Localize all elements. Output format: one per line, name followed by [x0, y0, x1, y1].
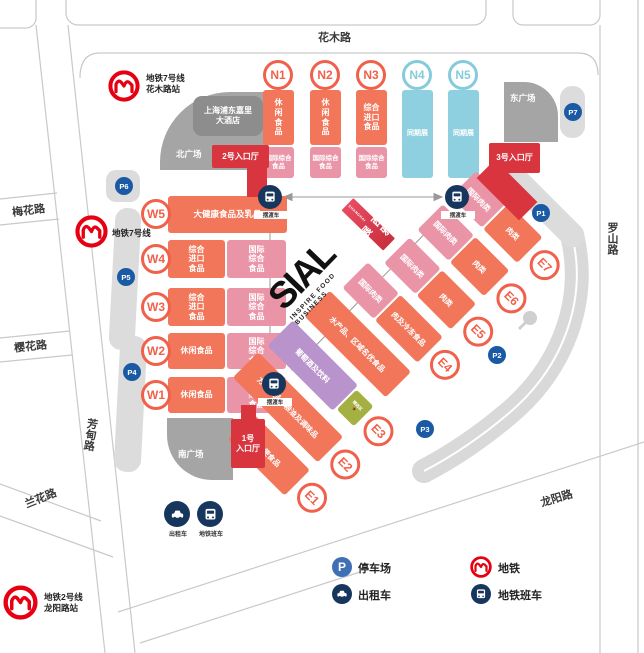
- taxi-label: 出租车: [162, 529, 194, 538]
- city-block: [513, 0, 600, 25]
- road-edge-meihua: [0, 219, 59, 225]
- road-label-yinghua: 樱花路: [13, 336, 47, 355]
- metro-logo-icon: [3, 585, 38, 620]
- entrance-hall-3-label: 3号入口厅: [496, 153, 532, 163]
- road-edge-yinghua: [0, 355, 72, 362]
- hall-circle-n1: N1: [263, 60, 293, 90]
- taxi-icon: [164, 501, 190, 527]
- entrance-hall-1: 1号 入口厅: [231, 419, 265, 468]
- metro-line7-label-line2: 花木路站: [146, 84, 185, 95]
- entrance-hall-2: 2号入口厅: [212, 145, 269, 168]
- hall-circle-w4: W4: [141, 244, 171, 274]
- metro-shuttle-icon: [197, 501, 223, 527]
- east-plaza-label: 东广场: [510, 92, 536, 104]
- hall-circle-n3: N3: [356, 60, 386, 90]
- legend-parking-icon: P: [332, 557, 352, 577]
- legend-metro-shuttle-label: 地铁班车: [498, 587, 542, 603]
- parking-marker-p3: P3: [416, 420, 434, 438]
- metro-logo-icon: [75, 215, 108, 248]
- entrance-hall-3: 3号入口厅: [489, 143, 540, 173]
- hall-circle-w3: W3: [141, 292, 171, 322]
- hall-circle-n5: N5: [448, 60, 478, 90]
- hotel-box: 上海浦东嘉里 大酒店: [193, 96, 263, 136]
- parking-marker-p7: P7: [564, 103, 582, 121]
- south-plaza-label: 南广场: [178, 448, 204, 460]
- parking-marker-p2: P2: [488, 346, 506, 364]
- entrance-hall-1-label-line2: 入口厅: [236, 444, 260, 454]
- hall-circle-n4: N4: [402, 60, 432, 90]
- hall-circle-n2: N2: [310, 60, 340, 90]
- legend-metro-shuttle-icon: [471, 584, 491, 604]
- road-edge-meihua: [0, 193, 57, 199]
- hotel-name-line2: 大酒店: [216, 116, 240, 126]
- legend-taxi-label: 出租车: [358, 587, 391, 603]
- hall-circle-w2: W2: [141, 336, 171, 366]
- hall-circle-w5: W5: [141, 199, 171, 229]
- city-block: [66, 0, 486, 25]
- shuttle-bus-icon: [445, 185, 469, 209]
- metro-logo-icon: [108, 70, 140, 102]
- legend-metro-label: 地铁: [498, 560, 520, 576]
- parking-marker-p6: P6: [115, 177, 133, 195]
- hall-n5-zone-label: 同期展: [453, 130, 474, 138]
- road-edge-longyang: [140, 572, 360, 643]
- metro-line2-label-line1: 地铁2号线: [44, 592, 83, 603]
- hall-n2-zone-label: 休闲食品: [321, 98, 331, 136]
- legend-taxi-icon: [332, 584, 352, 604]
- metro-line2-label-line2: 龙阳路站: [44, 603, 83, 614]
- entrance-hall-1-label-line1: 1号: [242, 434, 254, 444]
- hall-n1-zone: 休闲食品: [263, 90, 294, 145]
- metro-line7-label-line1: 地铁7号线: [146, 73, 185, 84]
- metro-shuttle-label: 地铁班车: [192, 529, 230, 538]
- shuttle-bus-label: 摆渡车: [254, 211, 288, 219]
- hall-n1-zone-label: 休闲食品: [274, 98, 284, 136]
- entrance-hall-2-label: 2号入口厅: [222, 152, 258, 162]
- north-plaza-label: 北广场: [176, 148, 202, 160]
- hall-e3-special-star: ★: [350, 406, 357, 413]
- shuttle-bus-icon: [262, 372, 286, 396]
- hall-n1-zone2-label: 国际综合食品: [265, 155, 292, 171]
- road-label-luoshan: 罗山路: [604, 222, 620, 255]
- metro-line2-longyang-station-label: 地铁2号线 龙阳路站: [44, 592, 83, 615]
- hall-circle-w1: W1: [141, 380, 171, 410]
- shuttle-bus-label: 摆渡车: [441, 211, 475, 219]
- legend-parking-label: 停车场: [358, 560, 391, 576]
- shuttle-bus-label: 摆渡车: [258, 398, 292, 406]
- road-edge-lanhua: [0, 516, 113, 557]
- parking-marker-p1: P1: [532, 204, 550, 222]
- parking-marker-p4: P4: [123, 363, 141, 381]
- road-label-huamu: 花木路: [318, 29, 351, 45]
- legend-metro-icon: [470, 556, 492, 578]
- metro-line7-huamu-station-label: 地铁7号线 花木路站: [146, 73, 185, 96]
- parking-marker-p5: P5: [117, 268, 135, 286]
- city-block: [0, 0, 36, 28]
- expo-venue-map: 花木路 梅花路 樱花路 芳甸路 兰花路 罗山路 龙阳路 北广场 上海浦东嘉里 大…: [0, 0, 644, 653]
- shuttle-bus-icon: [258, 185, 282, 209]
- metro-line7-label: 地铁7号线: [112, 228, 151, 239]
- hotel-name-line1: 上海浦东嘉里: [204, 106, 252, 116]
